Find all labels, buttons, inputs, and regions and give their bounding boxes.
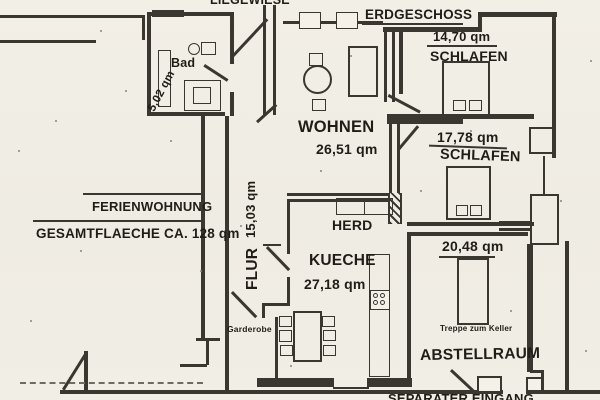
scan-speckle [320, 170, 322, 172]
wall-segment [0, 40, 96, 43]
room-label-flur: FLUR [244, 248, 262, 290]
scan-speckle [100, 30, 102, 32]
room-area-wohnen: 26,51 qm [316, 141, 378, 157]
wall-segment [397, 116, 400, 193]
scan-speckle [510, 310, 512, 312]
counter-icon [369, 254, 390, 377]
wall-segment [407, 234, 411, 382]
stove-icon [370, 290, 390, 310]
wall-segment [287, 193, 388, 196]
toilet-icon [188, 43, 200, 55]
title-underline [362, 23, 463, 25]
burner-icon [380, 300, 385, 305]
room-label-wohnen: WOHNEN [298, 118, 374, 137]
door-swing-icon [388, 94, 421, 113]
room-label-abstellraum: ABSTELLRAUM [420, 345, 540, 365]
wall-segment [225, 116, 229, 392]
wall-segment [262, 303, 265, 318]
wall-segment [407, 222, 534, 226]
door-swing-icon [397, 125, 419, 150]
wall-segment [389, 116, 392, 193]
scan-speckle [585, 350, 587, 352]
door-swing-icon [231, 291, 257, 318]
dining-table-icon [293, 311, 322, 362]
shower-tray-icon [193, 87, 211, 104]
chair-icon [323, 330, 336, 341]
wall-segment [257, 378, 334, 387]
scan-speckle [240, 225, 242, 227]
room-area-abstellraum: 20,48 qm [442, 238, 504, 254]
pillow-icon [470, 205, 482, 216]
wall-segment [273, 5, 276, 115]
door-swing-icon [62, 353, 86, 390]
wall-segment [263, 303, 290, 306]
pillow-icon [469, 100, 482, 111]
room-area-schlafen-2: 17,78 qm [437, 129, 499, 145]
chair-icon [279, 330, 292, 342]
annotation-treppe: Treppe zum Keller [440, 324, 512, 333]
staircase-icon [457, 258, 489, 325]
room-area-schlafen-1: 14,70 qm [433, 29, 490, 44]
pillar [529, 127, 556, 154]
wall-segment [565, 241, 569, 392]
scan-speckle [55, 120, 57, 122]
wall-segment [367, 378, 412, 387]
chair-icon [323, 345, 336, 356]
scan-speckle [125, 90, 127, 92]
annotation-garderobe: Garderobe [227, 324, 272, 334]
sofa-icon [348, 46, 378, 97]
area-underline [427, 45, 497, 47]
room-label-schlafen-2: SCHLAFEN [440, 147, 521, 166]
door-swing-icon [204, 64, 229, 81]
bed-icon [442, 61, 490, 116]
wall-segment [152, 10, 184, 17]
wall-segment [499, 228, 530, 231]
bed-icon [446, 166, 491, 220]
wall-segment [399, 30, 403, 94]
pillow-icon [456, 205, 468, 216]
scan-speckle [290, 365, 292, 367]
window-icon [336, 12, 358, 29]
toilet-tank-icon [201, 42, 216, 55]
scan-speckle [560, 200, 562, 202]
room-label-kueche: KUECHE [309, 252, 376, 270]
scan-speckle [590, 60, 592, 62]
annotation-herd: HERD [332, 217, 372, 233]
counter-icon [364, 198, 393, 215]
site-label: LIEGEWIESE [210, 0, 290, 7]
pillar [530, 194, 559, 245]
pillow-icon [453, 100, 466, 111]
burner-icon [373, 300, 378, 305]
floor-plan-scan: LIEGEWIESE ERDGESCHOSS 14,70 qm SCHLAFEN… [0, 0, 600, 400]
door-post [526, 377, 543, 392]
unit-total-area: GESAMTFLAECHE CA. 128 qm [36, 226, 240, 241]
annotation-eingang: SEPARATER EINGANG [388, 391, 534, 400]
wall-segment [206, 341, 209, 365]
scan-speckle [170, 140, 172, 142]
wall-segment [142, 15, 145, 40]
scan-speckle [18, 150, 20, 152]
window-icon [299, 12, 321, 29]
counter-icon [336, 198, 365, 215]
wall-segment [384, 28, 387, 102]
wall-segment [478, 12, 557, 17]
chair-icon [322, 316, 335, 327]
wall-segment [287, 277, 290, 305]
wall-segment [230, 92, 234, 116]
chair-icon [312, 99, 326, 111]
wall-segment [0, 15, 145, 18]
chair-icon [279, 316, 292, 327]
scan-speckle [470, 130, 472, 132]
wall-segment [180, 364, 207, 367]
scan-speckle [350, 55, 352, 57]
burner-icon [380, 293, 385, 298]
wall-segment [287, 202, 290, 254]
label-rule [83, 193, 201, 195]
wall-segment [407, 232, 528, 236]
scan-speckle [80, 250, 82, 252]
unit-name: FERIENWOHNUNG [92, 199, 212, 214]
wall-segment [275, 317, 278, 382]
wall-segment [333, 387, 369, 389]
wall-segment [263, 244, 281, 246]
room-label-schlafen-1: SCHLAFEN [430, 48, 508, 64]
wall-segment [543, 156, 545, 194]
round-table-icon [303, 65, 332, 94]
room-area-kueche: 27,18 qm [304, 276, 366, 292]
room-label-bad: Bad [171, 56, 195, 70]
wall-segment [147, 112, 225, 116]
burner-icon [373, 293, 378, 298]
floor-title: ERDGESCHOSS [365, 7, 472, 22]
scan-speckle [420, 190, 422, 192]
scan-speckle [30, 320, 32, 322]
wall-segment [392, 28, 395, 102]
room-area-flur: 15,03 qm [243, 181, 258, 238]
scan-speckle [200, 270, 202, 272]
property-line [20, 382, 203, 384]
chair-icon [280, 345, 293, 356]
label-rule [33, 220, 201, 222]
